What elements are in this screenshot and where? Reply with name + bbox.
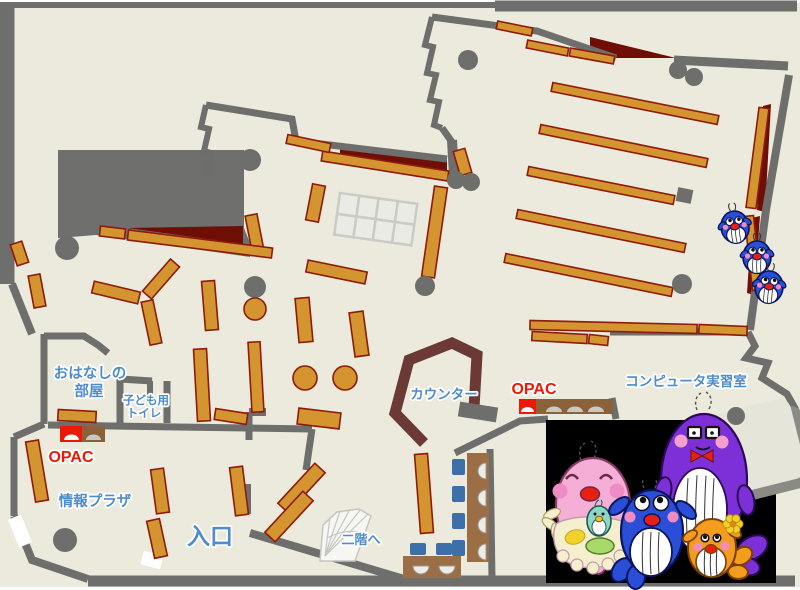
stool: [293, 366, 317, 390]
chair: [452, 486, 465, 502]
bookshelf: [589, 335, 609, 346]
label-ohanashi-line1: おはなしの: [54, 365, 127, 382]
pillar: [669, 61, 687, 79]
shelf-end-block: [676, 187, 694, 204]
pillar: [415, 276, 435, 296]
apron-frill: [557, 550, 569, 562]
label-opac-left: OPAC: [48, 449, 93, 466]
label-opac-right: OPAC: [511, 381, 556, 398]
floor-map-canvas: おはなしの部屋子ども用トイレOPAC情報プラザ入口二階へカウンターOPACコンピ…: [0, 0, 800, 590]
pupil: [760, 248, 764, 252]
label-to-second-floor: 二階へ: [341, 532, 380, 547]
stool: [244, 298, 266, 320]
pillar: [685, 68, 703, 86]
chair: [436, 543, 452, 555]
mouth: [644, 514, 660, 526]
eye: [594, 513, 597, 516]
pillar: [458, 50, 478, 70]
cheek: [694, 543, 703, 552]
pupil: [710, 431, 714, 435]
pillar: [239, 149, 261, 171]
cheek: [745, 253, 750, 258]
cheek: [625, 512, 636, 523]
label-joho-plaza: 情報プラザ: [59, 492, 132, 510]
label-computer-room: コンピュータ実習室: [625, 373, 747, 389]
study-table-grid: [334, 193, 417, 245]
pillar: [672, 274, 692, 294]
label-entrance: 入口: [187, 523, 233, 549]
cheek: [764, 253, 769, 258]
cushion: [586, 538, 614, 554]
pupil: [657, 497, 663, 503]
label-counter: カウンター: [410, 387, 478, 402]
cheek: [675, 435, 688, 448]
pupil: [692, 431, 696, 435]
pupil: [751, 248, 755, 252]
bookshelf: [699, 325, 747, 336]
label-toilet-line1: 子ども用: [123, 394, 169, 407]
wall: [490, 449, 492, 579]
study-table-cell: [392, 222, 414, 246]
apron-frill: [571, 559, 583, 571]
bookshelf: [99, 226, 125, 239]
pupil: [640, 497, 646, 503]
mouth: [581, 487, 600, 501]
stool: [333, 366, 357, 390]
library-floor-map: おはなしの部屋子ども用トイレOPAC情報プラザ入口二階へカウンターOPACコンピ…: [0, 0, 800, 590]
chair: [452, 459, 465, 475]
eye: [602, 513, 605, 516]
pupil: [703, 535, 707, 539]
pillar: [727, 407, 745, 425]
cheek: [716, 436, 729, 449]
wall: [674, 60, 788, 66]
bookshelf: [295, 297, 313, 342]
bookshelf: [58, 410, 97, 423]
label-toilet-line2: トイレ: [127, 407, 162, 420]
mouth: [596, 516, 603, 522]
pillar: [53, 528, 77, 552]
flower-center: [730, 521, 736, 527]
chair: [452, 513, 465, 529]
pillar: [55, 236, 79, 260]
chair: [410, 543, 426, 555]
mouth: [706, 545, 717, 554]
study-table-cell: [395, 201, 417, 225]
label-ohanashi-line2: 部屋: [75, 382, 104, 400]
chair: [452, 540, 465, 556]
bookshelf: [532, 332, 587, 344]
mouth: [753, 253, 762, 260]
cheek: [668, 512, 679, 523]
apron-frill: [587, 562, 599, 574]
cheek: [553, 484, 568, 499]
cheek: [610, 484, 625, 499]
pillar: [462, 173, 480, 191]
pupil: [715, 535, 719, 539]
mouth: [764, 283, 774, 291]
cheek: [721, 542, 730, 551]
wall: [452, 140, 454, 176]
pillar: [244, 276, 266, 298]
